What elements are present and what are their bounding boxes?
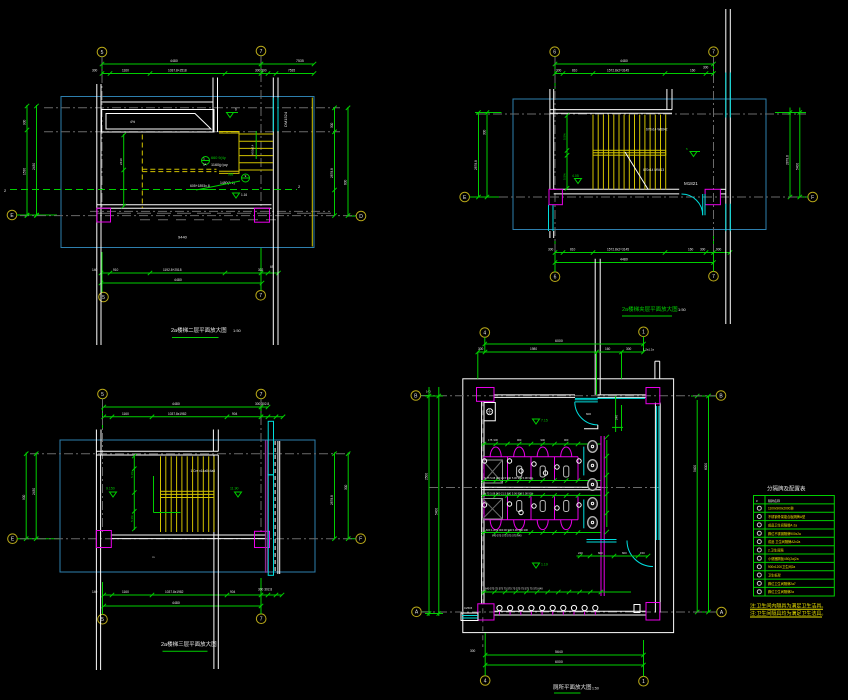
svg-text:C2515: C2515: [464, 606, 473, 610]
svg-text:300: 300: [626, 347, 632, 351]
svg-text:5.1%: 5.1%: [130, 471, 134, 478]
svg-text:640 575 75 575 75 575 75 575 7: 640 575 75 575 75 575 75 575 75 575 75 5…: [485, 587, 543, 591]
svg-text:1530: 1530: [23, 168, 27, 175]
svg-text:卫生纸架: 卫生纸架: [768, 573, 782, 578]
svg-text:300: 300: [483, 129, 487, 135]
svg-text:DM1524: DM1524: [283, 111, 288, 127]
svg-text:5: 5: [101, 617, 104, 623]
svg-text:600: 600: [586, 412, 591, 416]
svg-text:300: 300: [92, 69, 98, 73]
svg-text:7535: 7535: [288, 69, 295, 73]
svg-text:4480: 4480: [170, 59, 178, 63]
svg-text:1:50: 1:50: [678, 307, 687, 312]
svg-text:7: 7: [260, 392, 263, 398]
svg-text:H50x14: H50x14: [251, 144, 255, 155]
svg-text:4%: 4%: [130, 120, 135, 124]
svg-text:5: 5: [686, 147, 688, 151]
svg-text:240: 240: [615, 415, 619, 420]
svg-text:2878.8: 2878.8: [330, 168, 334, 178]
svg-text:蹲位卫生间隔牌2a7: 蹲位卫生间隔牌2a7: [768, 581, 796, 586]
svg-text:2878.8: 2878.8: [786, 155, 790, 165]
svg-text:E: E: [11, 537, 15, 543]
svg-text:5: 5: [101, 392, 104, 398]
svg-text:A: A: [720, 610, 724, 616]
svg-text:1: 1: [642, 679, 645, 685]
svg-text:N.75 5.08 900 21.5 900 5.06 90: N.75 5.08 900 21.5 900 5.06 900 5.08 900: [484, 491, 533, 495]
svg-text:蹲位不锈钢隔牌900x2a: 蹲位不锈钢隔牌900x2a: [768, 531, 801, 536]
svg-text:6: 6: [554, 275, 557, 281]
svg-text:5400: 5400: [434, 508, 438, 515]
svg-text:1160: 1160: [122, 590, 129, 594]
svg-text:5: 5: [102, 295, 105, 301]
svg-text:670x14 M9413: 670x14 M9413: [643, 168, 664, 172]
svg-text:2878.8: 2878.8: [330, 495, 334, 505]
svg-text:5A: 5A: [203, 163, 207, 167]
svg-text:F: F: [359, 537, 362, 543]
svg-text:5.1%: 5.1%: [130, 515, 134, 522]
svg-text:B: B: [719, 393, 723, 399]
svg-text:988: 988: [228, 173, 234, 177]
svg-text:分隔牌及配置表: 分隔牌及配置表: [767, 485, 806, 493]
svg-text:4.05: 4.05: [572, 174, 579, 178]
svg-text:160: 160: [688, 248, 694, 252]
svg-text:5400: 5400: [693, 465, 697, 472]
svg-text:2430: 2430: [32, 163, 36, 170]
svg-text:注:卫生间隔具均为满足卫生洁具。: 注:卫生间隔具均为满足卫生洁具。: [750, 610, 826, 617]
svg-text:7: 7: [259, 293, 262, 299]
svg-text:2430: 2430: [32, 488, 36, 495]
svg-text:904: 904: [230, 590, 236, 594]
svg-text:300 302.8: 300 302.8: [258, 588, 272, 592]
svg-text:7: 7: [712, 274, 715, 280]
svg-text:4480: 4480: [172, 601, 180, 605]
svg-text:1572.8x2=3145: 1572.8x2=3145: [607, 69, 629, 73]
svg-text:1160: 1160: [122, 69, 129, 73]
svg-text:6000: 6000: [555, 339, 563, 343]
svg-text:6: 6: [553, 50, 556, 56]
svg-text:904: 904: [232, 412, 238, 416]
svg-text:1:50: 1:50: [592, 687, 599, 691]
svg-text:1160(p)uy: 1160(p)uy: [211, 163, 228, 167]
svg-text:300: 300: [556, 69, 562, 73]
svg-text:1980: 1980: [530, 347, 537, 351]
svg-text:1572.8x2=3145: 1572.8x2=3145: [607, 248, 629, 252]
svg-text:160: 160: [605, 347, 611, 351]
svg-text:1: 1: [642, 330, 645, 336]
svg-text:300: 300: [330, 122, 334, 128]
svg-text:640 575 575 575 575 640: 640 575 575 575 575 640: [492, 534, 522, 538]
svg-text:成品卫生间隔牌A-2a: 成品卫生间隔牌A-2a: [768, 522, 797, 527]
svg-text:6: 6: [235, 108, 237, 112]
svg-text:810: 810: [572, 69, 578, 73]
svg-text:5: 5: [101, 50, 104, 56]
svg-text:600: 600: [622, 551, 627, 555]
svg-text:2a楼梯夹层平面放大图: 2a楼梯夹层平面放大图: [622, 305, 678, 313]
svg-text:11.90: 11.90: [230, 487, 239, 491]
svg-text:2.卫生间隔: 2.卫生间隔: [768, 548, 784, 553]
svg-text:不锈钢骨架複合板隔牌A型: 不锈钢骨架複合板隔牌A型: [768, 514, 806, 519]
svg-text:1.2a1.2a: 1.2a1.2a: [643, 348, 654, 352]
svg-text:成品 卫生间隔牌A2x2a: 成品 卫生间隔牌A2x2a: [768, 539, 800, 544]
svg-text:900x1200卫生间2a: 900x1200卫生间2a: [768, 564, 795, 569]
svg-text:5.5%: 5.5%: [563, 173, 567, 180]
svg-text:300 302.8: 300 302.8: [255, 402, 269, 406]
svg-text:2: 2: [4, 188, 7, 193]
svg-text:A: A: [415, 610, 419, 616]
svg-text:900: 900: [541, 438, 546, 442]
svg-text:2878.8: 2878.8: [474, 160, 478, 170]
svg-text:150: 150: [640, 551, 645, 555]
svg-text:注:卫生间内隔具为满足卫生洁具。: 注:卫生间内隔具为满足卫生洁具。: [750, 603, 826, 610]
svg-text:900: 900: [716, 248, 722, 252]
svg-text:605+1893x.8: 605+1893x.8: [190, 184, 210, 188]
svg-text:1037.8x1982: 1037.8x1982: [168, 412, 187, 416]
svg-text:600: 600: [598, 551, 603, 555]
svg-text:7: 7: [260, 617, 263, 623]
svg-text:E: E: [463, 195, 467, 201]
svg-text:7: 7: [712, 50, 715, 56]
svg-text:300: 300: [344, 484, 348, 490]
svg-text:9440: 9440: [178, 235, 188, 240]
svg-text:302: 302: [258, 268, 264, 272]
svg-text:厕所平面放大图: 厕所平面放大图: [553, 683, 592, 691]
svg-text:900: 900: [517, 438, 522, 442]
svg-text:1.16: 1.16: [241, 193, 247, 197]
svg-text:5640: 5640: [555, 650, 563, 654]
svg-text:2430: 2430: [119, 158, 123, 165]
svg-text:蹲位卫生间隔牌2a: 蹲位卫生间隔牌2a: [768, 589, 794, 594]
svg-text:7: 7: [260, 49, 263, 55]
svg-text:910: 910: [113, 268, 119, 272]
svg-text:175: 175: [488, 438, 493, 442]
svg-text:M1821: M1821: [684, 181, 698, 186]
svg-text:670x14 W8842: 670x14 W8842: [646, 128, 668, 132]
svg-text:7535: 7535: [296, 59, 304, 63]
svg-text:1192.8+2518: 1192.8+2518: [163, 268, 182, 272]
svg-text:160: 160: [690, 69, 696, 73]
svg-text:1.19: 1.19: [541, 563, 548, 567]
svg-text:隔牌名称: 隔牌名称: [768, 498, 780, 503]
svg-text:5400: 5400: [795, 163, 799, 170]
svg-text:1037.8+2518: 1037.8+2518: [168, 69, 187, 73]
svg-text:小便器隔板450(2a)2a: 小便器隔板450(2a)2a: [768, 556, 799, 561]
svg-text:F: F: [811, 195, 814, 201]
svg-text:300: 300: [703, 66, 709, 70]
svg-text:4480: 4480: [620, 258, 628, 262]
svg-text:4480: 4480: [620, 59, 628, 63]
svg-text:6000: 6000: [704, 463, 708, 470]
svg-text:300: 300: [700, 248, 706, 252]
svg-text:900: 900: [22, 494, 26, 500]
svg-text:900: 900: [564, 438, 569, 442]
svg-text:300: 300: [548, 248, 554, 252]
svg-text:2500: 2500: [425, 473, 429, 480]
svg-text:#: #: [756, 499, 758, 503]
svg-text:2a楼梯三层平面放大图: 2a楼梯三层平面放大图: [161, 640, 217, 648]
svg-text:6000: 6000: [555, 660, 563, 664]
svg-text:300 300: 300 300: [255, 69, 267, 73]
svg-text:300: 300: [470, 649, 476, 653]
svg-text:1:50: 1:50: [233, 328, 242, 333]
svg-text:600: 600: [344, 179, 348, 185]
svg-text:E: E: [10, 213, 14, 219]
svg-text:660 9(4y: 660 9(4y: [211, 156, 226, 160]
svg-text:7.15: 7.15: [541, 419, 548, 423]
svg-text:1160: 1160: [122, 412, 129, 416]
svg-text:m: m: [152, 555, 155, 559]
svg-text:300: 300: [478, 347, 484, 351]
svg-text:1100x900x2000淋: 1100x900x2000淋: [768, 506, 794, 511]
svg-text:600 1.2m2 900 90 900 5.06 900: 600 1.2m2 900 90 900 5.06 900 300: [486, 528, 528, 532]
svg-text:4480: 4480: [174, 278, 182, 282]
svg-text:4480: 4480: [172, 402, 180, 406]
svg-text:900: 900: [494, 438, 499, 442]
svg-text:D: D: [359, 214, 363, 220]
svg-text:4: 4: [483, 330, 486, 336]
svg-text:810: 810: [570, 248, 576, 252]
svg-text:240: 240: [578, 551, 583, 555]
svg-text:4: 4: [484, 678, 487, 684]
svg-text:2: 2: [298, 184, 301, 189]
svg-text:900: 900: [23, 119, 27, 125]
svg-text:9.150: 9.150: [106, 487, 115, 491]
svg-text:2a楼梯二层平面放大图: 2a楼梯二层平面放大图: [171, 326, 227, 334]
svg-text:1037.8x1982: 1037.8x1982: [165, 590, 184, 594]
svg-text:1 Cre x14a8=4a8: 1 Cre x14a8=4a8: [191, 469, 216, 473]
svg-text:N.75 5.08 900 21.5 900 5.06 90: N.75 5.08 900 21.5 900 5.06 900 5.08 900: [484, 476, 533, 480]
svg-text:B: B: [414, 393, 418, 399]
svg-text:5.5%: 5.5%: [563, 133, 567, 140]
